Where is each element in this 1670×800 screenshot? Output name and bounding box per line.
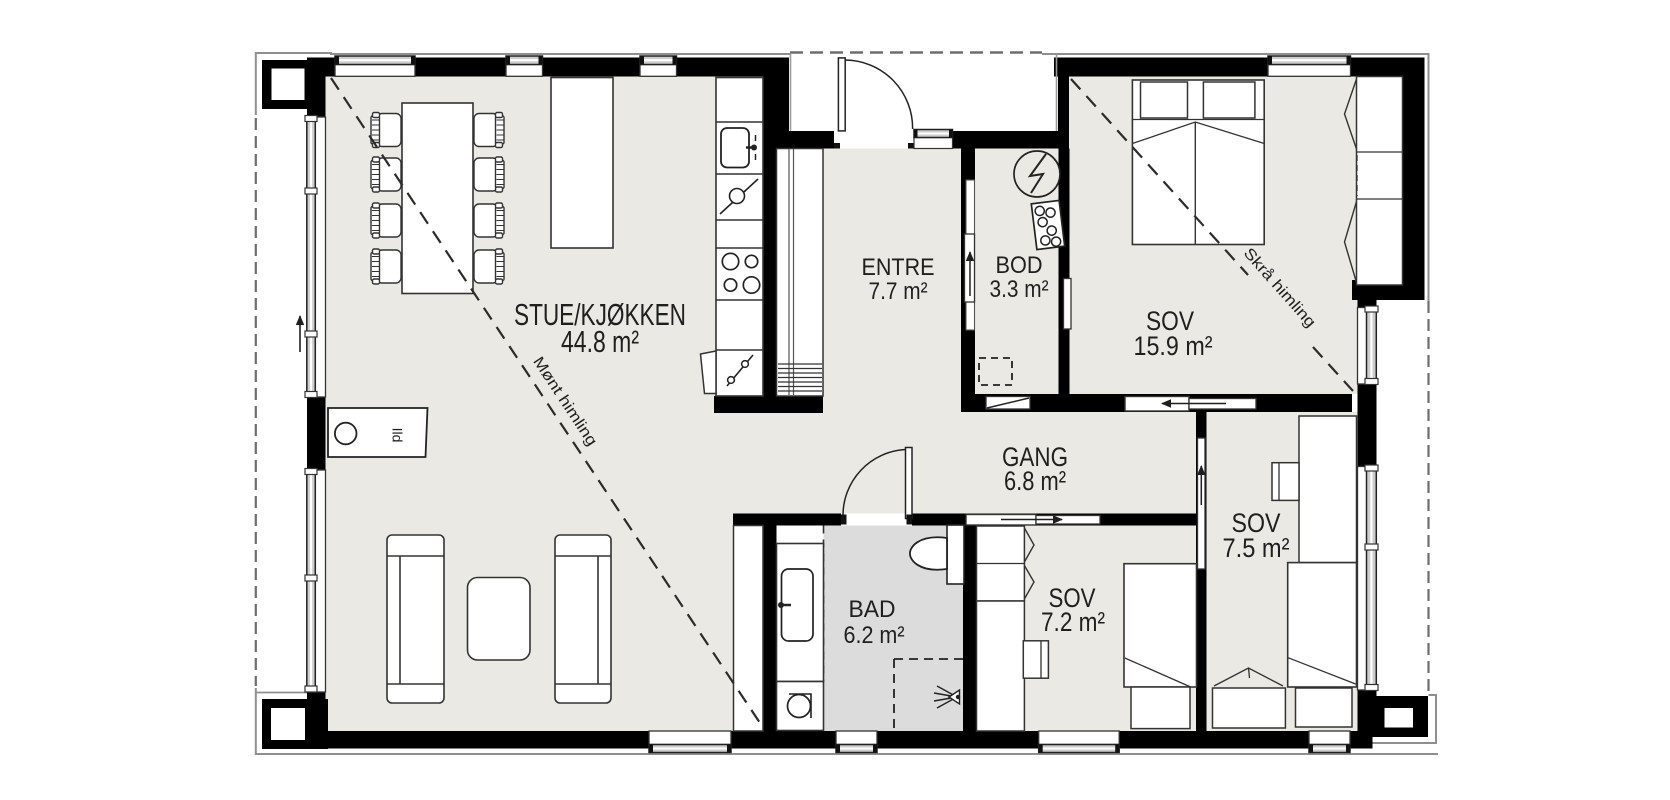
svg-text:7.7 m²: 7.7 m²	[869, 278, 928, 305]
svg-text:44.8 m²: 44.8 m²	[561, 324, 639, 359]
svg-text:ENTRE: ENTRE	[862, 254, 935, 281]
svg-text:BAD: BAD	[849, 596, 896, 623]
svg-text:6.8 m²: 6.8 m²	[1004, 466, 1066, 496]
svg-text:7.5 m²: 7.5 m²	[1223, 533, 1290, 563]
svg-text:BOD: BOD	[996, 252, 1043, 279]
svg-text:15.9 m²: 15.9 m²	[1134, 331, 1213, 361]
svg-text:6.2 m²: 6.2 m²	[844, 622, 905, 649]
svg-text:Ild: Ild	[389, 428, 405, 443]
svg-text:3.3 m²: 3.3 m²	[990, 276, 1049, 303]
svg-text:7.2 m²: 7.2 m²	[1041, 607, 1105, 637]
